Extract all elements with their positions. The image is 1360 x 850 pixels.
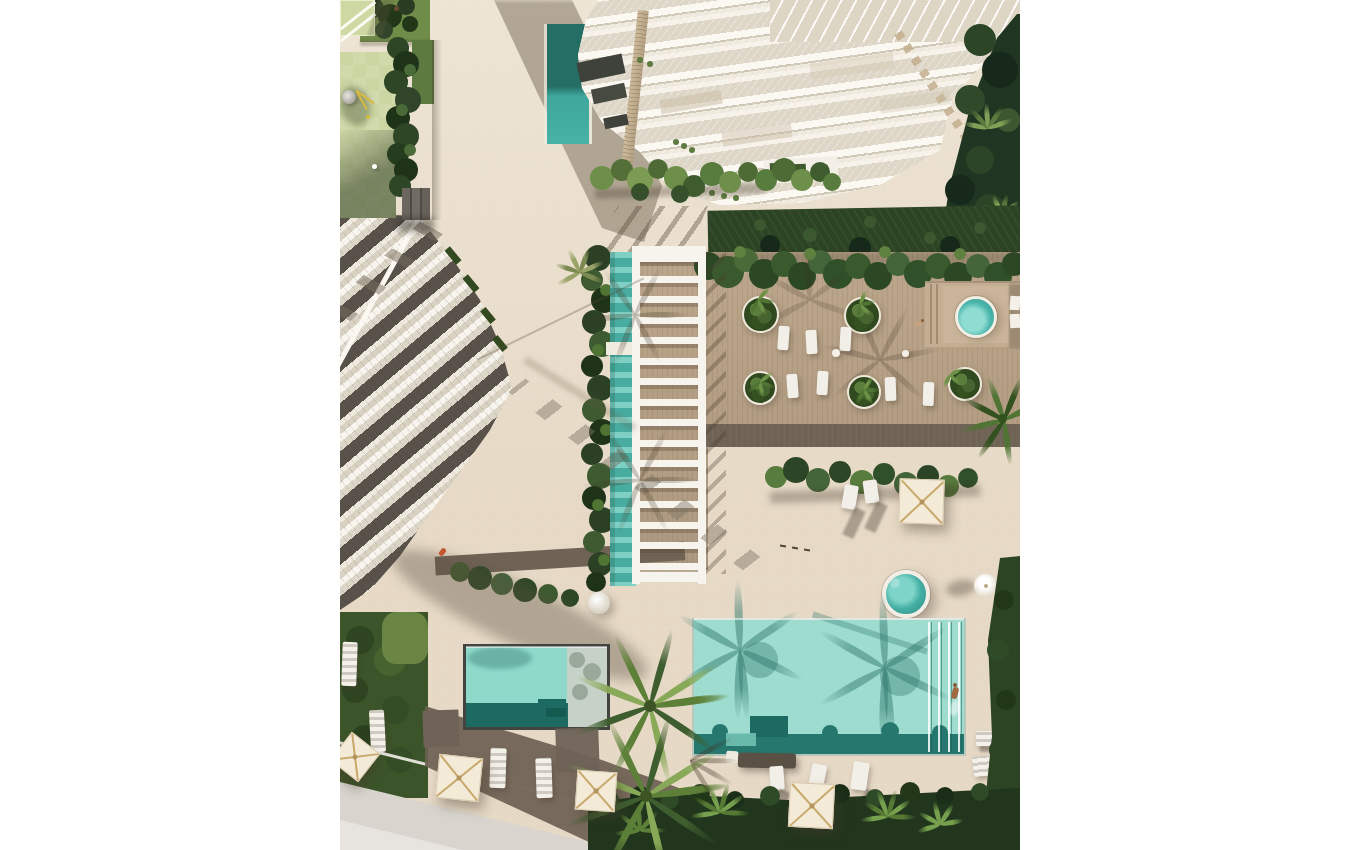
center-hedge-highlights-1 bbox=[592, 344, 604, 356]
planter-slabs-shadow bbox=[398, 218, 434, 232]
bottom-hedge-bumps-10 bbox=[936, 787, 954, 805]
center-hedge-highlights-4 bbox=[598, 554, 610, 566]
jungle-foliage-5 bbox=[945, 175, 975, 205]
left-hedge-highlights-1 bbox=[396, 104, 408, 116]
center-hedge-strip-5 bbox=[581, 355, 603, 377]
left-hedge-highlights-0 bbox=[404, 64, 416, 76]
right-edge-grass-texture-0 bbox=[994, 590, 1014, 610]
bottom-lawn-sunpatch bbox=[382, 612, 428, 664]
right-edge-grass-texture-2 bbox=[996, 690, 1016, 710]
swimmer-head bbox=[953, 683, 957, 687]
pavement-palm-shadow-b-4 bbox=[640, 477, 700, 483]
deck-far-lounger-2 bbox=[1010, 314, 1020, 329]
plunge-platform-step-1 bbox=[930, 284, 932, 344]
tree-row-highlights-3 bbox=[954, 248, 966, 260]
jungle-foliage-4 bbox=[966, 146, 994, 174]
dark-lawn-speckle-0 bbox=[754, 219, 766, 231]
deck-side-table-1 bbox=[832, 349, 840, 357]
tree-row-over-deck-16 bbox=[1002, 252, 1020, 276]
white-dome-sculpture bbox=[588, 592, 610, 614]
jungle-foliage-1 bbox=[982, 52, 1018, 88]
main-pool-deep-wave-4 bbox=[932, 725, 948, 741]
deck-lounger-7 bbox=[923, 382, 935, 406]
hedge-cast-shade bbox=[432, 40, 442, 220]
family-pool-edge-light bbox=[466, 646, 607, 648]
umbrella-poolside-right bbox=[788, 782, 835, 829]
dark-lawn-speckle-1 bbox=[803, 228, 817, 242]
deck-lounger-1 bbox=[777, 326, 790, 351]
bottom-lawn-texture-3 bbox=[381, 696, 409, 724]
lane-shadow-2 bbox=[941, 622, 942, 752]
deck-lounger-5 bbox=[816, 371, 828, 396]
deck-far-lounger-1 bbox=[1010, 296, 1020, 311]
mid-lounger-1 bbox=[489, 748, 506, 789]
pergola-rail-left bbox=[632, 246, 640, 584]
pavement-palm-shadow-a-4 bbox=[635, 312, 690, 318]
tree-row-highlights-0 bbox=[734, 246, 746, 258]
lane-shadow-4 bbox=[961, 622, 962, 752]
plunge-platform-step-2 bbox=[936, 284, 938, 344]
tower-terrace-plants-8 bbox=[637, 57, 643, 63]
top-grass-trees-4 bbox=[402, 16, 418, 32]
tower-lap-pool-curb-left bbox=[544, 24, 547, 144]
dark-paver-square-1 bbox=[422, 709, 459, 747]
lane-line-2 bbox=[938, 622, 940, 752]
big-palm-core-2 bbox=[640, 790, 652, 802]
family-pool-tree-shade-2 bbox=[572, 684, 588, 700]
lane-line-4 bbox=[958, 622, 960, 752]
mid-lounger-2 bbox=[535, 758, 552, 799]
family-pool-step-1 bbox=[538, 699, 566, 708]
bottom-hedge-bumps-11 bbox=[971, 783, 989, 801]
white-bird bbox=[372, 164, 377, 169]
lane-line-3 bbox=[948, 622, 950, 752]
umbrella-terrace-finial bbox=[919, 499, 924, 504]
umbrella-lawn-finial bbox=[351, 753, 358, 760]
aerial-render bbox=[340, 0, 1020, 850]
right-edge-grass-texture-1 bbox=[987, 639, 1009, 661]
family-pool-shade-blob bbox=[468, 647, 532, 669]
tower-bush-row-15 bbox=[671, 185, 689, 203]
jacuzzi-round bbox=[882, 570, 930, 618]
tree-row-highlights-2 bbox=[879, 246, 891, 258]
tower-terrace-plants-0 bbox=[673, 139, 679, 145]
tower-terrace-plants-2 bbox=[689, 147, 695, 153]
plunge-platform-edge bbox=[925, 281, 1020, 283]
center-hedge-highlights-3 bbox=[592, 499, 604, 511]
sunbather-head bbox=[921, 319, 924, 322]
lane-line-1 bbox=[928, 622, 930, 752]
deck-lounger-2 bbox=[805, 330, 817, 355]
dark-lawn-speckle-3 bbox=[924, 232, 936, 244]
lawn-lounger-2 bbox=[369, 710, 386, 753]
plunge-pool-round bbox=[955, 296, 997, 338]
umbrella-poolside-mid bbox=[575, 770, 618, 813]
lawn-lounger-1 bbox=[341, 642, 358, 686]
center-hedge-strip-15 bbox=[586, 572, 606, 592]
lane-shadow-3 bbox=[951, 622, 952, 752]
deck-side-table-2 bbox=[902, 350, 909, 357]
tower-terrace-plants-6 bbox=[733, 195, 739, 201]
center-hedge-strip-13 bbox=[583, 531, 605, 553]
big-palm-core-1 bbox=[644, 700, 656, 712]
lane-shadow-1 bbox=[931, 622, 932, 752]
parasol-center-dot bbox=[984, 584, 988, 588]
deck-corner-palm-core bbox=[998, 414, 1007, 423]
top-grass-trunk bbox=[394, 6, 399, 11]
umbrella-terrace bbox=[898, 478, 945, 525]
tower-terrace-plants-9 bbox=[647, 61, 653, 67]
pergola-cap-top bbox=[632, 246, 706, 255]
main-pool-deep-wave-2 bbox=[822, 725, 838, 741]
deck-lounger-3 bbox=[839, 327, 851, 352]
bottom-hedge-bumps-5 bbox=[760, 786, 780, 806]
deck-lounger-4 bbox=[786, 374, 799, 399]
dark-lawn-speckle-4 bbox=[974, 222, 986, 234]
tower-bush-row-14 bbox=[631, 183, 649, 201]
main-pool-shadow-blobs-0 bbox=[742, 642, 778, 678]
south-hedge-row-2 bbox=[806, 468, 830, 492]
main-pool-shadow-blobs-1 bbox=[880, 656, 920, 696]
tower-terrace-plants-1 bbox=[681, 143, 687, 149]
dark-lawn-speckle-2 bbox=[864, 216, 876, 228]
planter-slabs bbox=[402, 188, 430, 220]
jacuzzi-step-glint bbox=[890, 578, 900, 588]
umbrella-lawn-rib-1 bbox=[340, 753, 378, 761]
jungle-foliage-0 bbox=[964, 24, 996, 56]
south-hedge-row-3 bbox=[829, 461, 851, 483]
playground-shade bbox=[340, 130, 396, 218]
tower-bush-row-13 bbox=[823, 173, 841, 191]
pergola-cap-bottom bbox=[632, 572, 706, 582]
firepit-bench bbox=[738, 752, 796, 768]
main-pool-deep-wave-3 bbox=[881, 722, 899, 740]
play-carousel bbox=[342, 90, 356, 104]
deck-lounger-6 bbox=[885, 377, 897, 401]
right-edge-grass-texture-3 bbox=[989, 739, 1011, 761]
family-pool-step-2 bbox=[546, 708, 566, 717]
page-canvas bbox=[0, 0, 1360, 850]
family-pool-tree-shade-0 bbox=[569, 652, 585, 668]
left-hedge-highlights-2 bbox=[404, 144, 416, 156]
umbrella-poolside-left bbox=[435, 754, 483, 802]
main-pool-edge-light bbox=[694, 618, 964, 620]
play-dot bbox=[366, 115, 370, 119]
